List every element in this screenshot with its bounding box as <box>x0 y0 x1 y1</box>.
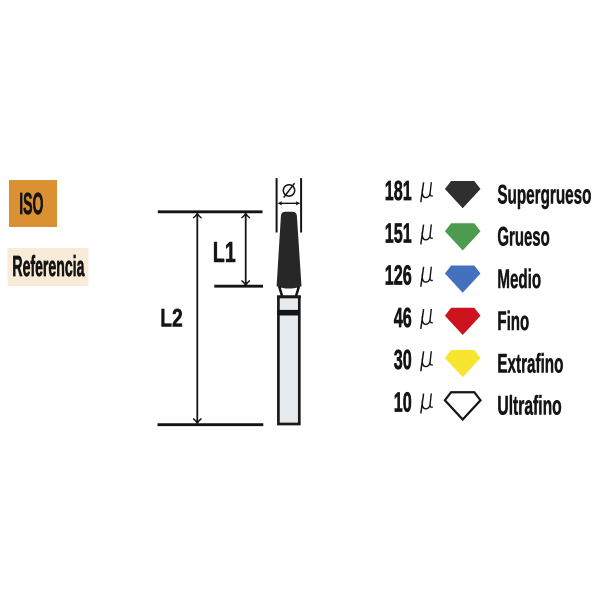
svg-text:Referencia: Referencia <box>12 251 84 283</box>
svg-text:Fino: Fino <box>497 305 529 336</box>
svg-text:ISO: ISO <box>19 186 43 221</box>
svg-text:L2: L2 <box>160 305 183 333</box>
svg-text:Grueso: Grueso <box>497 221 549 252</box>
svg-text:10: 10 <box>394 386 412 417</box>
svg-text:Extrafino: Extrafino <box>497 347 563 378</box>
svg-text:Ultrafino: Ultrafino <box>497 390 561 421</box>
svg-text:L1: L1 <box>213 237 236 269</box>
svg-text:151: 151 <box>385 217 412 248</box>
svg-text:46: 46 <box>394 302 412 333</box>
svg-text:Medio: Medio <box>497 263 541 294</box>
svg-text:30: 30 <box>394 344 412 375</box>
svg-text:Supergrueso: Supergrueso <box>497 178 591 209</box>
svg-text:126: 126 <box>385 260 412 291</box>
svg-text:181: 181 <box>385 175 412 206</box>
